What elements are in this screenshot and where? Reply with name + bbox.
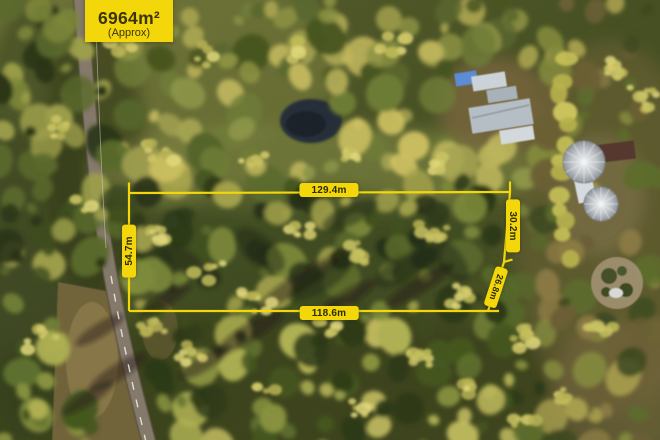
area-value: 6964m² <box>98 9 160 27</box>
area-qualifier: (Approx) <box>108 27 150 39</box>
dimension-label-right: 30.2m <box>506 199 520 252</box>
dimension-label-bottom: 118.6m <box>300 306 359 320</box>
dimension-label-left: 54.7m <box>122 224 136 277</box>
dimension-label-top: 129.4m <box>299 183 358 197</box>
aerial-listing-photo: 129.4m 118.6m 54.7m 30.2m 26.8m 6964m² (… <box>0 0 660 440</box>
garden-circle <box>591 257 643 309</box>
aerial-photo-background <box>0 0 660 440</box>
area-badge: 6964m² (Approx) <box>85 0 173 42</box>
